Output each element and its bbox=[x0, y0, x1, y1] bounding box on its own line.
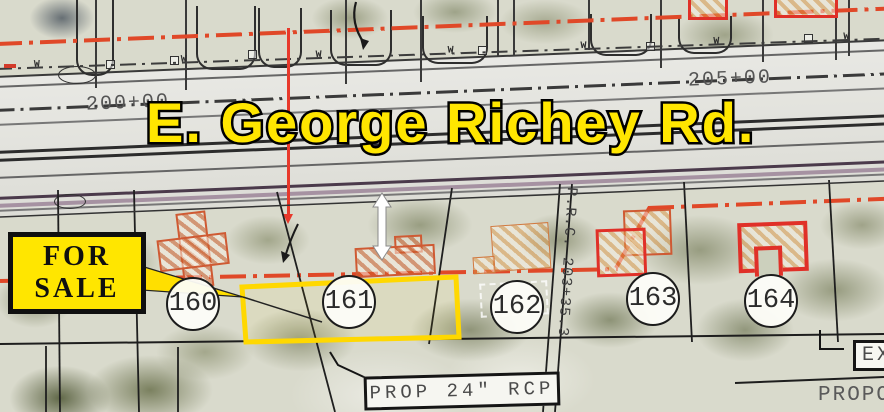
frontage-line bbox=[0, 181, 884, 217]
pipe-callout-text: PROP 24" RCP bbox=[369, 378, 554, 405]
road-name-title: E. George Richey Rd. bbox=[146, 90, 756, 155]
double-arrow-icon bbox=[373, 193, 391, 260]
lot-line-163-164 bbox=[684, 182, 692, 342]
lot-number: 164 bbox=[747, 286, 796, 316]
for-sale-line1: FOR bbox=[43, 241, 111, 273]
for-sale-line2: SALE bbox=[34, 273, 119, 305]
rear-line-east bbox=[735, 377, 884, 383]
lot-marker-161: 161 bbox=[322, 275, 376, 329]
lot-marker-162: 162 bbox=[490, 280, 544, 334]
proposed-label: PROPO bbox=[818, 384, 884, 407]
pipe-callout-box: PROP 24" RCP bbox=[364, 371, 561, 410]
plat-map-scan: W W W W W W W 200+00 205+00 bbox=[0, 0, 884, 412]
pipe-callout-leader bbox=[330, 352, 366, 378]
lot-number: 161 bbox=[325, 287, 374, 317]
lot-number: 162 bbox=[493, 292, 542, 322]
lot-marker-163: 163 bbox=[626, 272, 680, 326]
north-arrowhead-icon bbox=[360, 38, 369, 50]
lot-marker-164: 164 bbox=[744, 274, 798, 328]
exist-callout-leader bbox=[820, 330, 844, 349]
lot-number: 160 bbox=[169, 289, 218, 319]
exist-callout-box: EXI bbox=[853, 340, 884, 371]
lot-number: 163 bbox=[629, 284, 678, 314]
exist-callout-text: EXI bbox=[862, 344, 884, 367]
lot-marker-160: 160 bbox=[166, 277, 220, 331]
linework-overlay bbox=[0, 0, 884, 412]
north-arrow-curve bbox=[354, 2, 364, 43]
lot-line-164-east bbox=[829, 180, 838, 342]
for-sale-sign: FOR SALE bbox=[8, 232, 146, 314]
